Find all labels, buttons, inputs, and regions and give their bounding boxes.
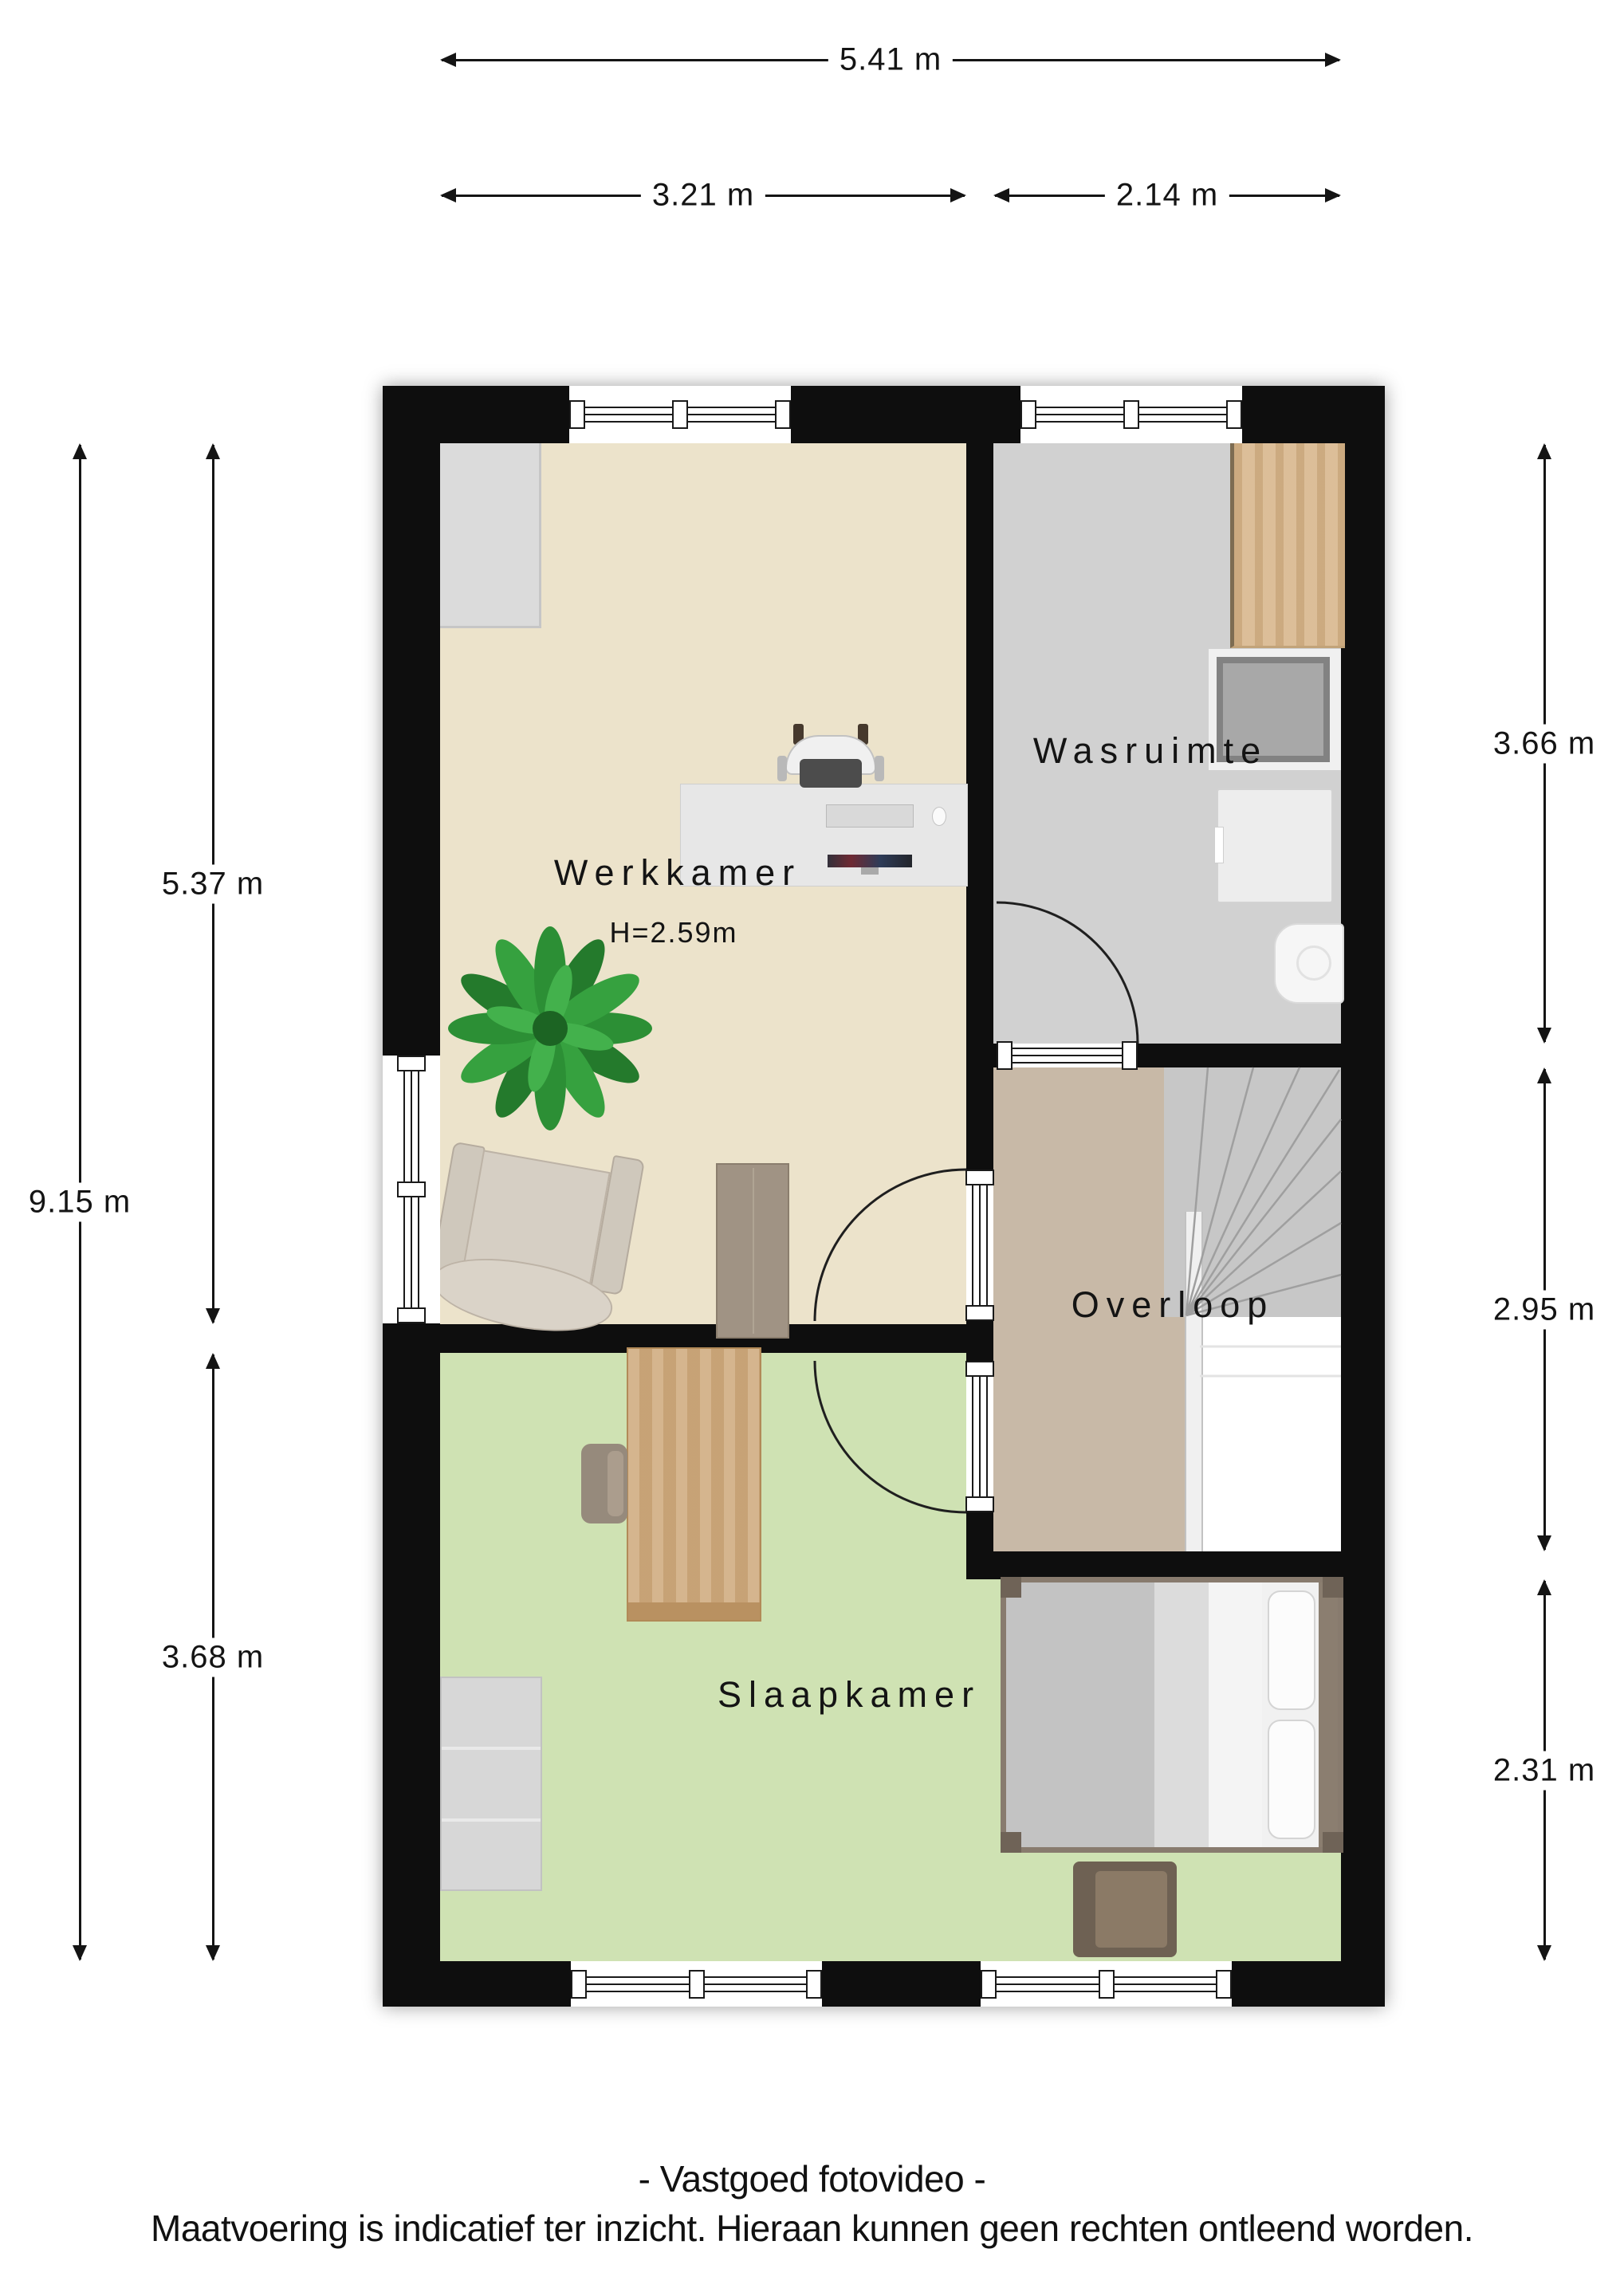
floor-plan-page: { "page": { "background": "#ffffff", "wa… — [0, 0, 1624, 2296]
wood-plank — [716, 1163, 789, 1339]
chair-armrest — [875, 756, 884, 781]
dimension-top-right: 2.14 m — [993, 171, 1341, 219]
bed-post — [1323, 1577, 1343, 1598]
werkkamer-ceiling-height: H=2.59m — [609, 916, 737, 949]
door-werkkamer — [966, 1170, 993, 1321]
dimension-right-middle: 2.95 m — [1520, 1067, 1568, 1551]
window — [571, 1961, 822, 2007]
dimension-label: 5.37 m — [151, 864, 275, 903]
window — [383, 1056, 440, 1323]
office-chair — [779, 724, 883, 789]
dryer-door-handle — [1214, 827, 1224, 863]
mouse-icon — [932, 807, 946, 826]
dimension-top-total: 5.41 m — [440, 36, 1341, 84]
dimension-label: 3.66 m — [1482, 724, 1606, 763]
werkkamer-label: Werkkamer — [554, 852, 801, 894]
dimension-label: 3.68 m — [151, 1637, 275, 1677]
double-bed — [1001, 1577, 1343, 1853]
monitor-icon — [828, 855, 912, 867]
bed-post — [1323, 1832, 1343, 1853]
window-frame-cap — [806, 1970, 822, 1999]
desk-chair — [581, 1444, 627, 1523]
door-frame-cap — [965, 1170, 994, 1185]
bed-blanket-fold — [1154, 1582, 1209, 1847]
window-frame-cap — [397, 1307, 426, 1323]
stairwell-void — [1200, 1317, 1341, 1551]
door-frame-cap — [997, 1041, 1013, 1070]
dimension-label: 2.95 m — [1482, 1290, 1606, 1329]
wood-counter — [1230, 443, 1345, 648]
door-wasruimte — [997, 1044, 1138, 1067]
closet — [440, 443, 541, 628]
overloop-label: Overloop — [1072, 1284, 1275, 1326]
dresser — [440, 1677, 542, 1891]
keyboard-icon — [826, 804, 914, 828]
dimension-label: 3.21 m — [641, 176, 765, 215]
monitor-stand — [861, 867, 879, 875]
window-mullion — [1123, 400, 1139, 429]
dimension-left-upper: 5.37 m — [189, 443, 237, 1324]
wasruimte-label: Wasruimte — [1033, 730, 1268, 772]
bedroom-desk — [627, 1347, 761, 1622]
bed-sheet — [1209, 1582, 1262, 1847]
dimension-label: 5.41 m — [828, 41, 953, 80]
floor-plan: Werkkamer H=2.59m Wasruimte Overloop Sla… — [383, 386, 1385, 2007]
window-frame-cap — [569, 400, 585, 429]
slaapkamer-label: Slaapkamer — [718, 1674, 981, 1716]
door-frame-cap — [965, 1496, 994, 1512]
window-frame-cap — [397, 1056, 426, 1071]
ottoman — [1073, 1862, 1177, 1957]
dryer — [1217, 788, 1333, 903]
window-frame-cap — [775, 400, 791, 429]
window-frame-cap — [571, 1970, 587, 1999]
window-mullion — [397, 1181, 426, 1197]
door-slaapkamer — [966, 1361, 993, 1512]
window — [1020, 386, 1242, 443]
dimension-left-total: 9.15 m — [56, 443, 104, 1961]
pillow — [1268, 1590, 1315, 1710]
window-frame-cap — [981, 1970, 997, 1999]
window-frame-cap — [1216, 1970, 1232, 1999]
window — [981, 1961, 1232, 2007]
footer-disclaimer: Maatvoering is indicatief ter inzicht. H… — [0, 2207, 1624, 2250]
bed-post — [1001, 1832, 1021, 1853]
door-leaf — [972, 1176, 988, 1315]
dimension-label: 9.15 m — [18, 1183, 142, 1222]
sink — [1274, 923, 1344, 1004]
window — [569, 386, 791, 443]
bed-headboard — [1319, 1582, 1338, 1847]
dimension-right-upper: 3.66 m — [1520, 443, 1568, 1044]
door-frame-cap — [1122, 1041, 1138, 1070]
armchair — [423, 1127, 645, 1349]
bed-post — [1001, 1577, 1021, 1598]
chair-armrest — [777, 756, 787, 781]
door-leaf — [1003, 1048, 1131, 1063]
window-mullion — [672, 400, 688, 429]
window-frame-cap — [1020, 400, 1036, 429]
dimension-label: 2.31 m — [1482, 1751, 1606, 1790]
door-frame-cap — [965, 1361, 994, 1377]
window-frame-cap — [1226, 400, 1242, 429]
door-leaf — [972, 1367, 988, 1506]
window-mullion — [689, 1970, 705, 1999]
pillow — [1268, 1720, 1315, 1839]
chair-cushion — [800, 759, 862, 788]
dimension-left-lower: 3.68 m — [189, 1353, 237, 1961]
window-mullion — [1099, 1970, 1115, 1999]
dimension-top-left: 3.21 m — [440, 171, 966, 219]
door-frame-cap — [965, 1305, 994, 1321]
stair-railing — [1185, 1212, 1203, 1551]
dimension-right-lower: 2.31 m — [1520, 1579, 1568, 1961]
bed-blanket — [1006, 1582, 1154, 1847]
footer-brand: - Vastgoed fotovideo - — [0, 2157, 1624, 2200]
dimension-label: 2.14 m — [1105, 176, 1229, 215]
